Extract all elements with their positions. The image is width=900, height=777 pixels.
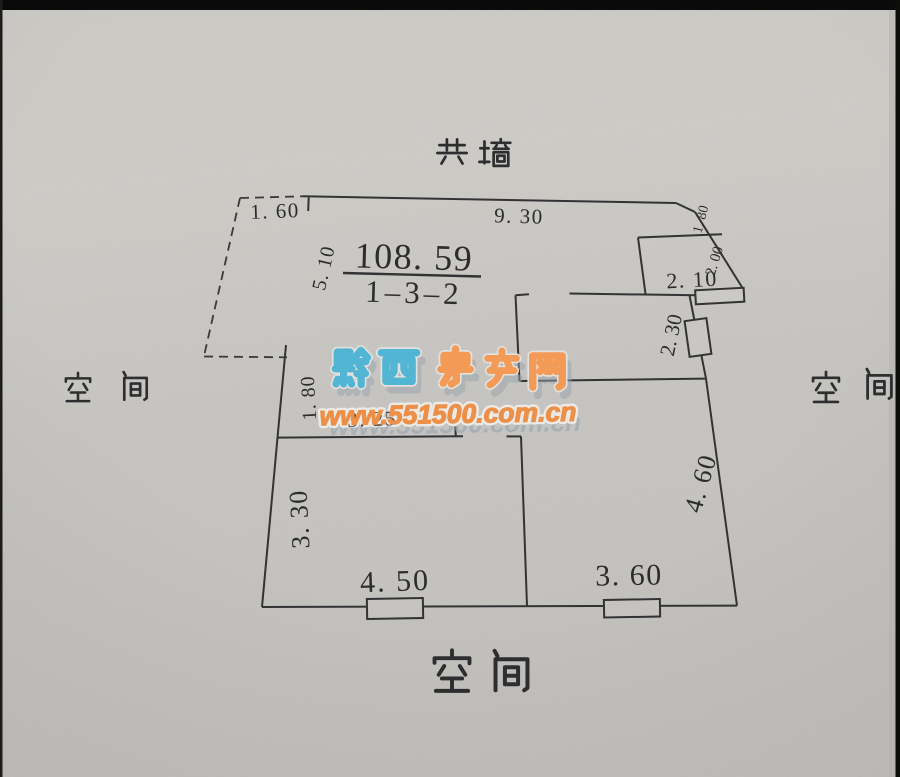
svg-text:1. 60: 1. 60 <box>250 198 300 224</box>
svg-text:1–3–2: 1–3–2 <box>365 274 463 312</box>
svg-text:3. 30: 3. 30 <box>283 489 315 550</box>
svg-text:4. 50: 4. 50 <box>359 564 430 599</box>
svg-text:www.551500.com.cn: www.551500.com.cn <box>319 397 576 431</box>
svg-text:108. 59: 108. 59 <box>354 235 474 278</box>
svg-text:9. 30: 9. 30 <box>494 203 544 229</box>
svg-text:3. 60: 3. 60 <box>595 558 663 592</box>
svg-text:2. 10: 2. 10 <box>666 266 719 294</box>
svg-text:1. 80: 1. 80 <box>297 375 321 421</box>
